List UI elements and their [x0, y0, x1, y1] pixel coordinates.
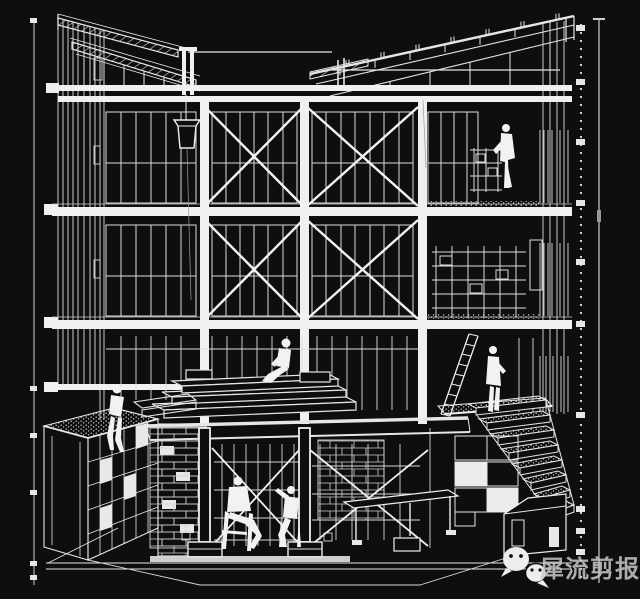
windows-second-floor	[106, 225, 413, 316]
right-wall	[519, 21, 568, 414]
roof-structure	[58, 13, 574, 96]
architectural-section-drawing	[0, 0, 640, 599]
screenshot-canvas: 犀流剪报	[0, 0, 640, 599]
storage-racks	[432, 148, 542, 318]
exterior-stairs	[455, 396, 574, 556]
left-wall	[58, 18, 104, 420]
watermark-account-name: 犀流剪报	[540, 549, 640, 584]
person-seated-basement-right	[275, 486, 301, 547]
person-worker-third-floor	[493, 124, 515, 188]
